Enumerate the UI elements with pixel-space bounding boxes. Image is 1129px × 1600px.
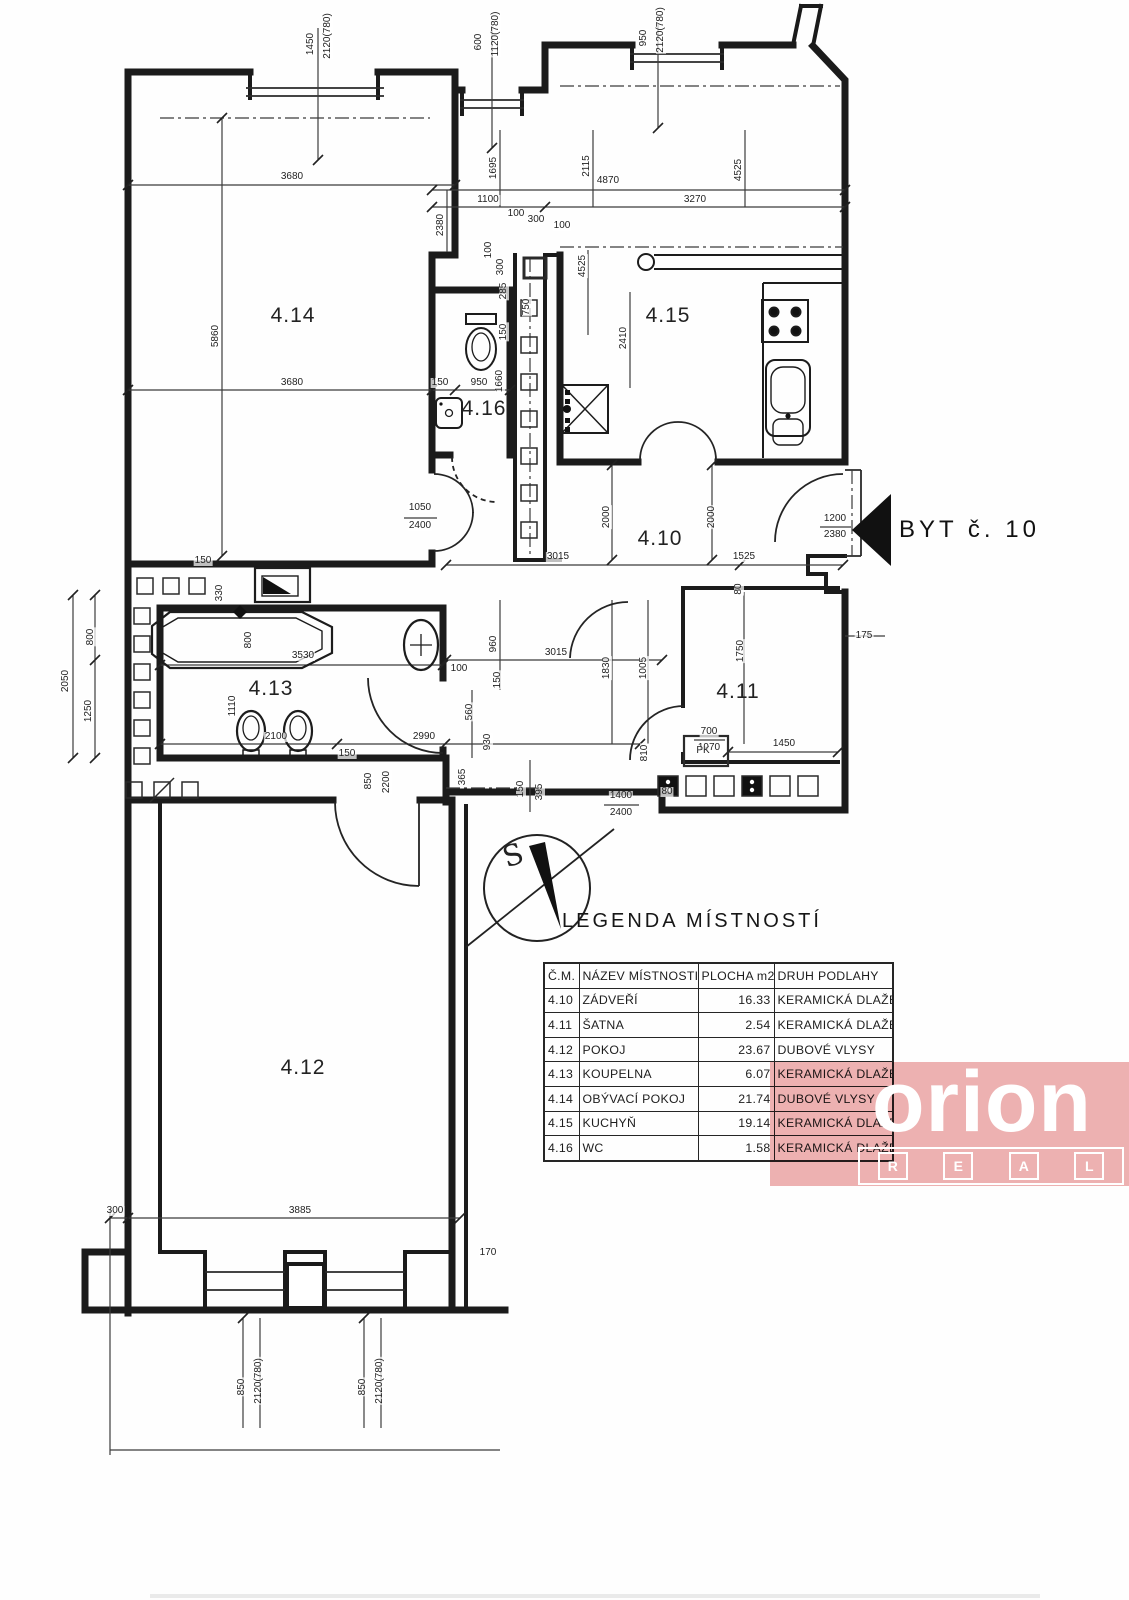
legend-cell: 4.14	[544, 1086, 579, 1111]
dimension-label: 2990	[412, 732, 436, 742]
dimension-label: 300	[106, 1206, 125, 1216]
dimension-label: 2000	[707, 505, 717, 529]
floorplan-page: 14502120(780)6001120(780)9502120(780)368…	[0, 0, 1129, 1600]
dimension-label: 3680	[280, 172, 304, 182]
legend-title: LEGENDA MÍSTNOSTÍ	[562, 910, 822, 933]
dimension-label: 810	[640, 744, 650, 763]
watermark-letter: A	[1009, 1152, 1039, 1180]
dimension-label: 80	[734, 582, 744, 595]
dimension-label: 4525	[734, 158, 744, 182]
legend-row: 4.11ŠATNA2.54KERAMICKÁ DLAŽBA	[544, 1013, 893, 1038]
room-label-4.15: 4.15	[646, 304, 691, 328]
dimension-label: 1400	[609, 791, 633, 801]
legend-cell: KERAMICKÁ DLAŽBA	[774, 988, 893, 1013]
dimension-label: 950	[470, 378, 489, 388]
dimension-label: 300	[527, 215, 546, 225]
dimension-label: 2120(780)	[656, 6, 666, 54]
dimension-label: 1120(780)	[491, 11, 501, 58]
entrance-label: BYT č. 10	[899, 516, 1040, 544]
dimension-label: 150	[493, 671, 503, 690]
legend-cell: 1.58	[698, 1136, 774, 1161]
dimension-label: 1110	[228, 695, 238, 718]
dimension-label: 365	[458, 768, 468, 787]
legend-cell: KERAMICKÁ DLAŽBA	[774, 1013, 893, 1038]
dimension-label: PK	[695, 746, 710, 756]
legend-cell: 23.67	[698, 1037, 774, 1062]
dimension-label: 560	[465, 703, 475, 722]
legend-cell: 4.10	[544, 988, 579, 1013]
legend-header-podlaha: DRUH PODLAHY	[774, 963, 893, 988]
legend-cell: 4.13	[544, 1062, 579, 1087]
dimension-label: 1250	[84, 699, 94, 723]
legend-row: 4.12POKOJ23.67DUBOVÉ VLYSY	[544, 1037, 893, 1062]
legend-cell: 2.54	[698, 1013, 774, 1038]
dimension-label: 750	[522, 298, 532, 317]
dimension-label: 150	[431, 378, 450, 388]
legend-header-row: Č.M. NÁZEV MÍSTNOSTI PLOCHA m2 DRUH PODL…	[544, 963, 893, 988]
dimension-label: 4870	[596, 176, 620, 186]
dimension-label: 1830	[602, 656, 612, 680]
dimension-label: 100	[450, 664, 469, 674]
dimension-label: 2120(780)	[375, 1357, 385, 1405]
dimension-label: 395	[535, 783, 545, 802]
dimension-label: 3015	[546, 552, 570, 562]
dimension-label: 1050	[408, 503, 432, 513]
dimension-label: 150	[338, 749, 357, 759]
watermark-letter: R	[878, 1152, 908, 1180]
dimension-label: 1525	[732, 552, 756, 562]
dimension-label: 850	[237, 1378, 247, 1397]
dimension-label: 800	[86, 628, 96, 647]
dimension-label: 850	[358, 1378, 368, 1397]
dimension-label: 960	[489, 635, 499, 654]
dimension-label: 3885	[288, 1206, 312, 1216]
legend-cell: POKOJ	[579, 1037, 698, 1062]
dimension-label: 150	[499, 323, 509, 342]
legend-cell: 21.74	[698, 1086, 774, 1111]
legend-cell: 4.12	[544, 1037, 579, 1062]
dimension-label: 2000	[602, 505, 612, 529]
plan-labels: 14502120(780)6001120(780)9502120(780)368…	[0, 0, 1129, 1600]
legend-row: 4.10ZÁDVEŘÍ16.33KERAMICKÁ DLAŽBA	[544, 988, 893, 1013]
legend-cell: OBÝVACÍ POKOJ	[579, 1086, 698, 1111]
dimension-label: 1695	[489, 156, 499, 180]
watermark-real-strip: REAL	[858, 1147, 1124, 1185]
dimension-label: 2410	[619, 326, 629, 350]
legend-cell: 4.11	[544, 1013, 579, 1038]
dimension-label: 2400	[408, 521, 432, 531]
dimension-label: 1450	[772, 739, 796, 749]
legend-header-nazev: NÁZEV MÍSTNOSTI	[579, 963, 698, 988]
dimension-label: 1660	[495, 369, 505, 393]
dimension-label: 1450	[306, 32, 316, 56]
room-label-4.11: 4.11	[716, 680, 759, 704]
dimension-label: 2200	[382, 770, 392, 794]
room-label-4.10: 4.10	[638, 527, 683, 551]
dimension-label: 100	[484, 241, 494, 260]
dimension-label: 930	[483, 733, 493, 752]
dimension-label: 1005	[639, 656, 649, 680]
dimension-label: 3680	[280, 378, 304, 388]
dimension-label: 1100	[476, 195, 500, 205]
dimension-label: 5860	[211, 324, 221, 348]
room-label-4.14: 4.14	[271, 304, 316, 328]
legend-header-plocha: PLOCHA m2	[698, 963, 774, 988]
watermark-brand: orion	[872, 1056, 1129, 1152]
dimension-label: 850	[364, 772, 374, 791]
dimension-label: 2380	[823, 530, 847, 540]
dimension-label: 2380	[436, 213, 446, 237]
dimension-label: 2100	[264, 732, 288, 742]
dimension-label: 80	[660, 787, 673, 797]
dimension-label: 950	[639, 29, 649, 48]
legend-cell: ZÁDVEŘÍ	[579, 988, 698, 1013]
dimension-label: 4525	[578, 254, 588, 278]
dimension-label: 3270	[683, 195, 707, 205]
legend-header-cm: Č.M.	[544, 963, 579, 988]
legend-cell: KUCHYŇ	[579, 1111, 698, 1136]
room-label-4.12: 4.12	[281, 1056, 326, 1080]
legend-cell: 4.16	[544, 1136, 579, 1161]
dimension-label: 600	[474, 33, 484, 52]
dimension-label: 3530	[291, 651, 315, 661]
dimension-label: 170	[479, 1248, 498, 1258]
dimension-label: 2115	[582, 154, 592, 178]
watermark-letter: E	[943, 1152, 973, 1180]
legend-cell: WC	[579, 1136, 698, 1161]
room-label-4.16: 4.16	[462, 397, 507, 421]
legend-cell: 19.14	[698, 1111, 774, 1136]
dimension-label: 2050	[61, 669, 71, 693]
dimension-label: 300	[496, 258, 506, 277]
dimension-label: 2120(780)	[323, 12, 333, 60]
legend-cell: ŠATNA	[579, 1013, 698, 1038]
dimension-label: 175	[855, 631, 874, 641]
watermark-letter: L	[1074, 1152, 1104, 1180]
dimension-label: 3015	[544, 648, 568, 658]
legend-cell: 16.33	[698, 988, 774, 1013]
dimension-label: 285	[499, 282, 509, 301]
dimension-label: 100	[507, 209, 526, 219]
room-label-4.13: 4.13	[249, 677, 294, 701]
dimension-label: 2120(780)	[254, 1357, 264, 1405]
dimension-label: 800	[244, 631, 254, 650]
dimension-label: 1750	[736, 639, 746, 663]
dimension-label: 1200	[823, 514, 847, 524]
dimension-label: 330	[215, 584, 225, 603]
legend-cell: KOUPELNA	[579, 1062, 698, 1087]
legend-cell: 4.15	[544, 1111, 579, 1136]
dimension-label: 2400	[609, 808, 633, 818]
legend-cell: 6.07	[698, 1062, 774, 1087]
dimension-label: 700	[700, 727, 719, 737]
dimension-label: 100	[553, 221, 572, 231]
dimension-label: 150	[516, 780, 526, 799]
dimension-label: 150	[194, 556, 213, 566]
